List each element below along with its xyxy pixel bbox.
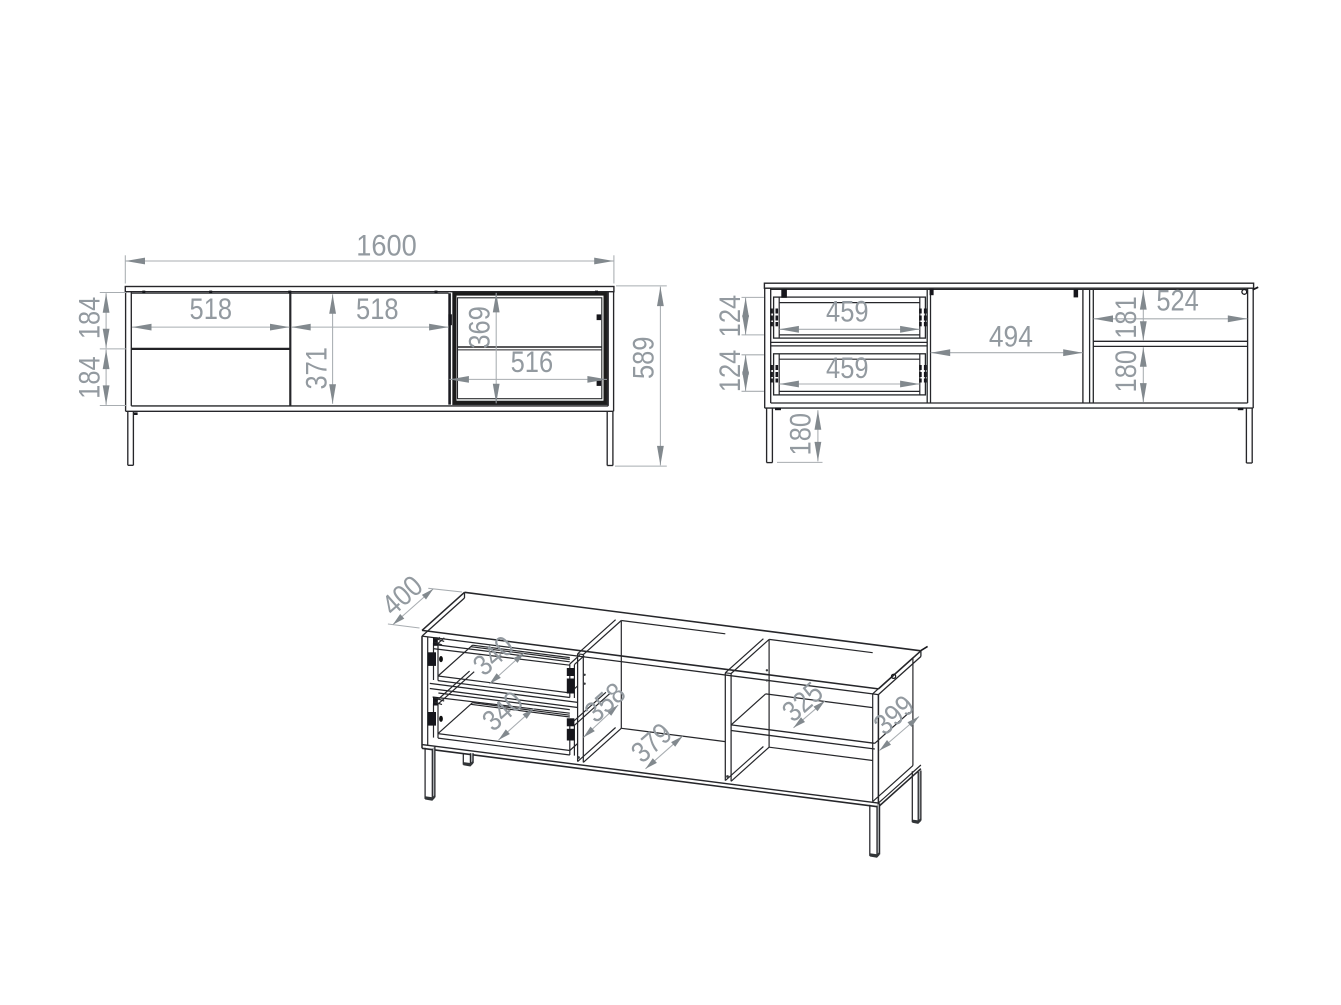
svg-text:518: 518 (190, 293, 233, 326)
svg-text:184: 184 (74, 297, 107, 340)
svg-text:459: 459 (826, 296, 869, 329)
svg-text:124: 124 (714, 350, 747, 393)
svg-text:181: 181 (1110, 296, 1143, 339)
svg-text:369: 369 (463, 306, 496, 349)
svg-text:184: 184 (74, 356, 107, 399)
svg-text:516: 516 (511, 346, 554, 379)
svg-text:518: 518 (356, 293, 399, 326)
svg-text:494: 494 (989, 320, 1033, 353)
svg-text:1600: 1600 (356, 229, 417, 262)
svg-text:180: 180 (785, 413, 818, 456)
svg-text:180: 180 (1110, 350, 1143, 393)
svg-text:124: 124 (714, 295, 747, 338)
svg-text:371: 371 (300, 347, 333, 390)
svg-text:459: 459 (826, 352, 869, 385)
svg-text:589: 589 (627, 337, 660, 380)
svg-text:524: 524 (1156, 284, 1199, 317)
